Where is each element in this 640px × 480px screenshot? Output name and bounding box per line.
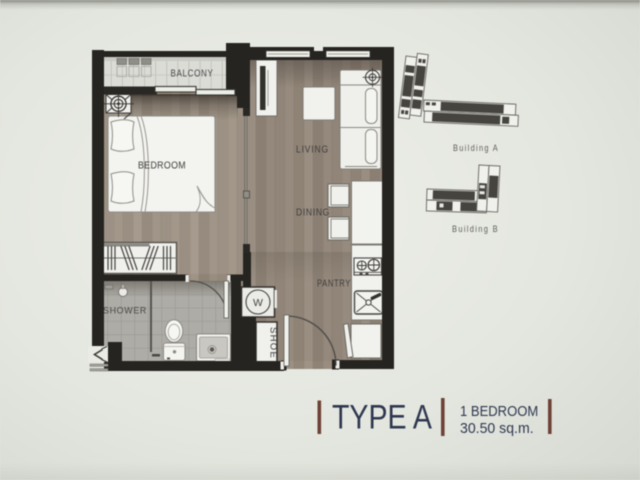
- svg-text:LIVING: LIVING: [296, 145, 329, 156]
- svg-text:30.50 sq.m.: 30.50 sq.m.: [460, 421, 534, 437]
- svg-text:Building A: Building A: [453, 143, 499, 153]
- svg-text:DINING: DINING: [296, 208, 330, 219]
- svg-text:SHOWER: SHOWER: [103, 306, 147, 316]
- svg-text:1 BEDROOM: 1 BEDROOM: [460, 402, 538, 419]
- svg-text:SHOE: SHOE: [268, 327, 279, 359]
- svg-text:TYPE A: TYPE A: [332, 398, 432, 436]
- svg-text:W: W: [253, 297, 263, 309]
- svg-text:BALCONY: BALCONY: [171, 69, 214, 80]
- svg-text:Building B: Building B: [452, 224, 499, 234]
- svg-text:PANTRY: PANTRY: [317, 279, 351, 290]
- svg-text:BEDROOM: BEDROOM: [138, 161, 186, 172]
